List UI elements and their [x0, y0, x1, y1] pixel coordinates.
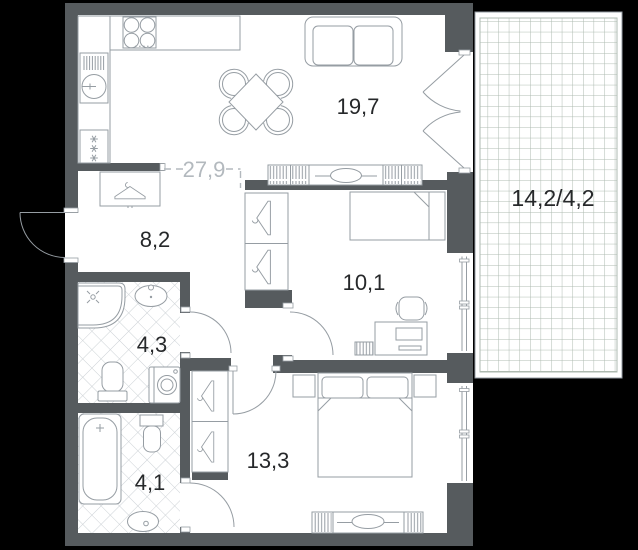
wardrobe-bedroom-master-icon [192, 371, 228, 472]
window-tick [460, 389, 470, 392]
wall-pillar-bottomright [447, 483, 473, 546]
toilet-icon [98, 362, 127, 401]
bathroom-main-area-label: 4,3 [137, 332, 168, 357]
radiator-icon [355, 342, 373, 355]
wall-pillar-right-1 [447, 172, 473, 253]
floor-plan-canvas: 14,2/4,2 [0, 0, 638, 550]
tv-stand-master-icon [312, 512, 423, 533]
wall-kitchen-stub [65, 163, 164, 171]
window-tick [460, 430, 470, 433]
stove-icon [123, 17, 156, 48]
wall-pillar-right-2 [447, 353, 473, 383]
window-tick [460, 259, 470, 262]
window-tick [460, 306, 470, 309]
window-tick [460, 435, 470, 438]
nightstand-left-icon [293, 375, 315, 397]
kitchen-sink-icon [80, 53, 108, 103]
tv-icon [352, 515, 384, 529]
wall-hall-bath [65, 272, 190, 282]
floor-plan: 14,2/4,2 [0, 0, 638, 550]
wall-between-bedrooms [283, 360, 447, 373]
double-bed-icon [318, 373, 412, 477]
wall-bath-right-c [180, 371, 190, 483]
wall-corridor-south [180, 358, 231, 371]
washing-machine-icon [149, 367, 180, 403]
sink-ensuite-icon [128, 512, 159, 532]
wall-bottom [65, 533, 473, 546]
bathtub-icon [79, 414, 121, 504]
wall-pillar-topright [445, 3, 473, 52]
tv-icon [331, 169, 362, 183]
bathroom-sink-icon [135, 285, 167, 307]
sofa-icon [305, 17, 402, 66]
hall-closet-icon [100, 172, 160, 208]
balcony-area-label: 14,2/4,2 [511, 185, 594, 211]
kitchen-living-total-label: 27,9 [183, 157, 226, 182]
bathroom-ensuite-area-label: 4,1 [135, 470, 166, 495]
desk-icon [375, 322, 427, 355]
window-tick [460, 301, 470, 304]
desk-chair-icon [396, 297, 427, 320]
hall-area-label: 8,2 [140, 227, 171, 252]
bedroom-master-area-label: 13,3 [247, 448, 290, 473]
living-area-label: 19,7 [337, 94, 380, 119]
wall-wardrobe-bottom [192, 472, 228, 480]
balcony: 14,2/4,2 [475, 12, 622, 378]
single-bed-icon [350, 192, 445, 240]
nightstand-right-icon [414, 375, 436, 397]
tv-stand-living-icon [268, 165, 422, 185]
toilet-ensuite-icon [140, 415, 163, 452]
bedroom-small-area-label: 10,1 [343, 270, 386, 295]
wall-top [65, 3, 473, 15]
fridge-icon [80, 130, 108, 163]
wardrobe-bedroom-small-icon [245, 193, 288, 290]
wall-bath-divider [65, 403, 190, 413]
wall-left-upper [65, 3, 78, 213]
